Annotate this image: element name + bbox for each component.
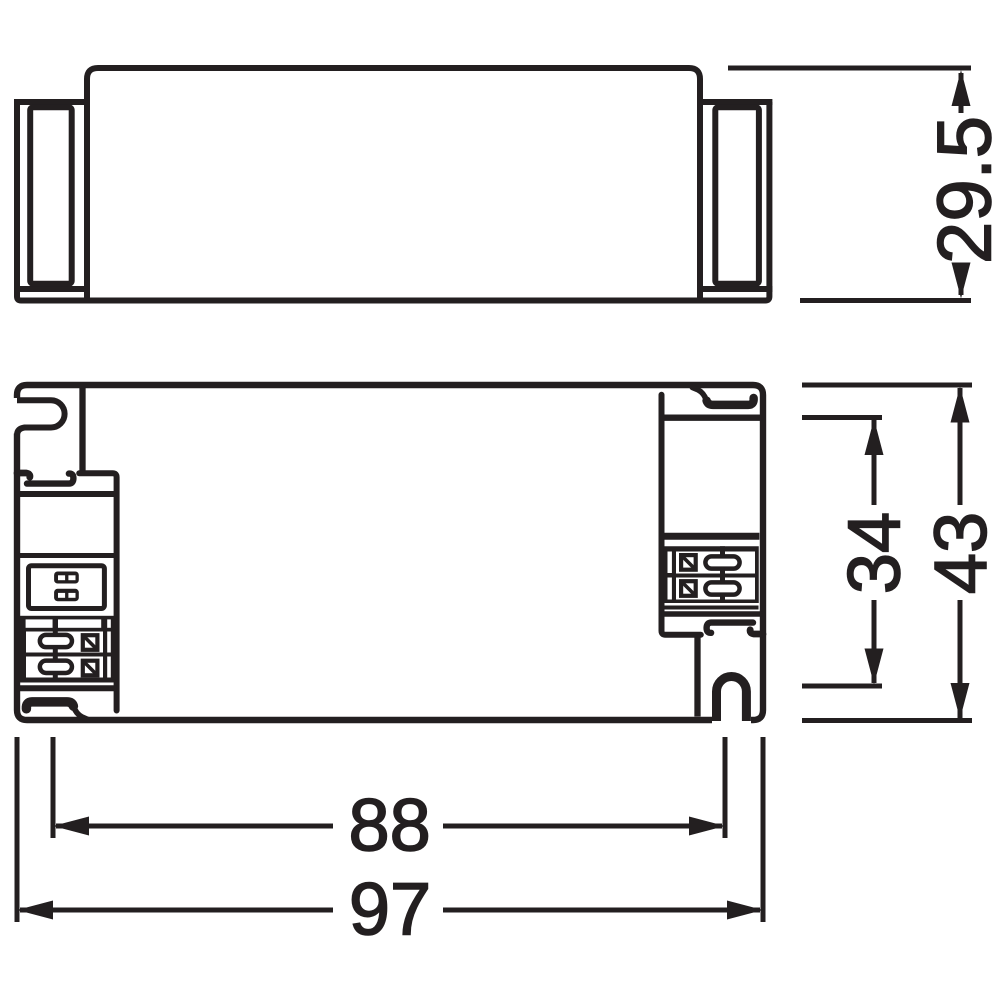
- svg-text:29.5: 29.5: [923, 116, 1000, 264]
- svg-text:34: 34: [833, 512, 916, 594]
- svg-text:43: 43: [919, 512, 1000, 594]
- svg-text:88: 88: [348, 784, 430, 867]
- svg-text:97: 97: [349, 868, 431, 951]
